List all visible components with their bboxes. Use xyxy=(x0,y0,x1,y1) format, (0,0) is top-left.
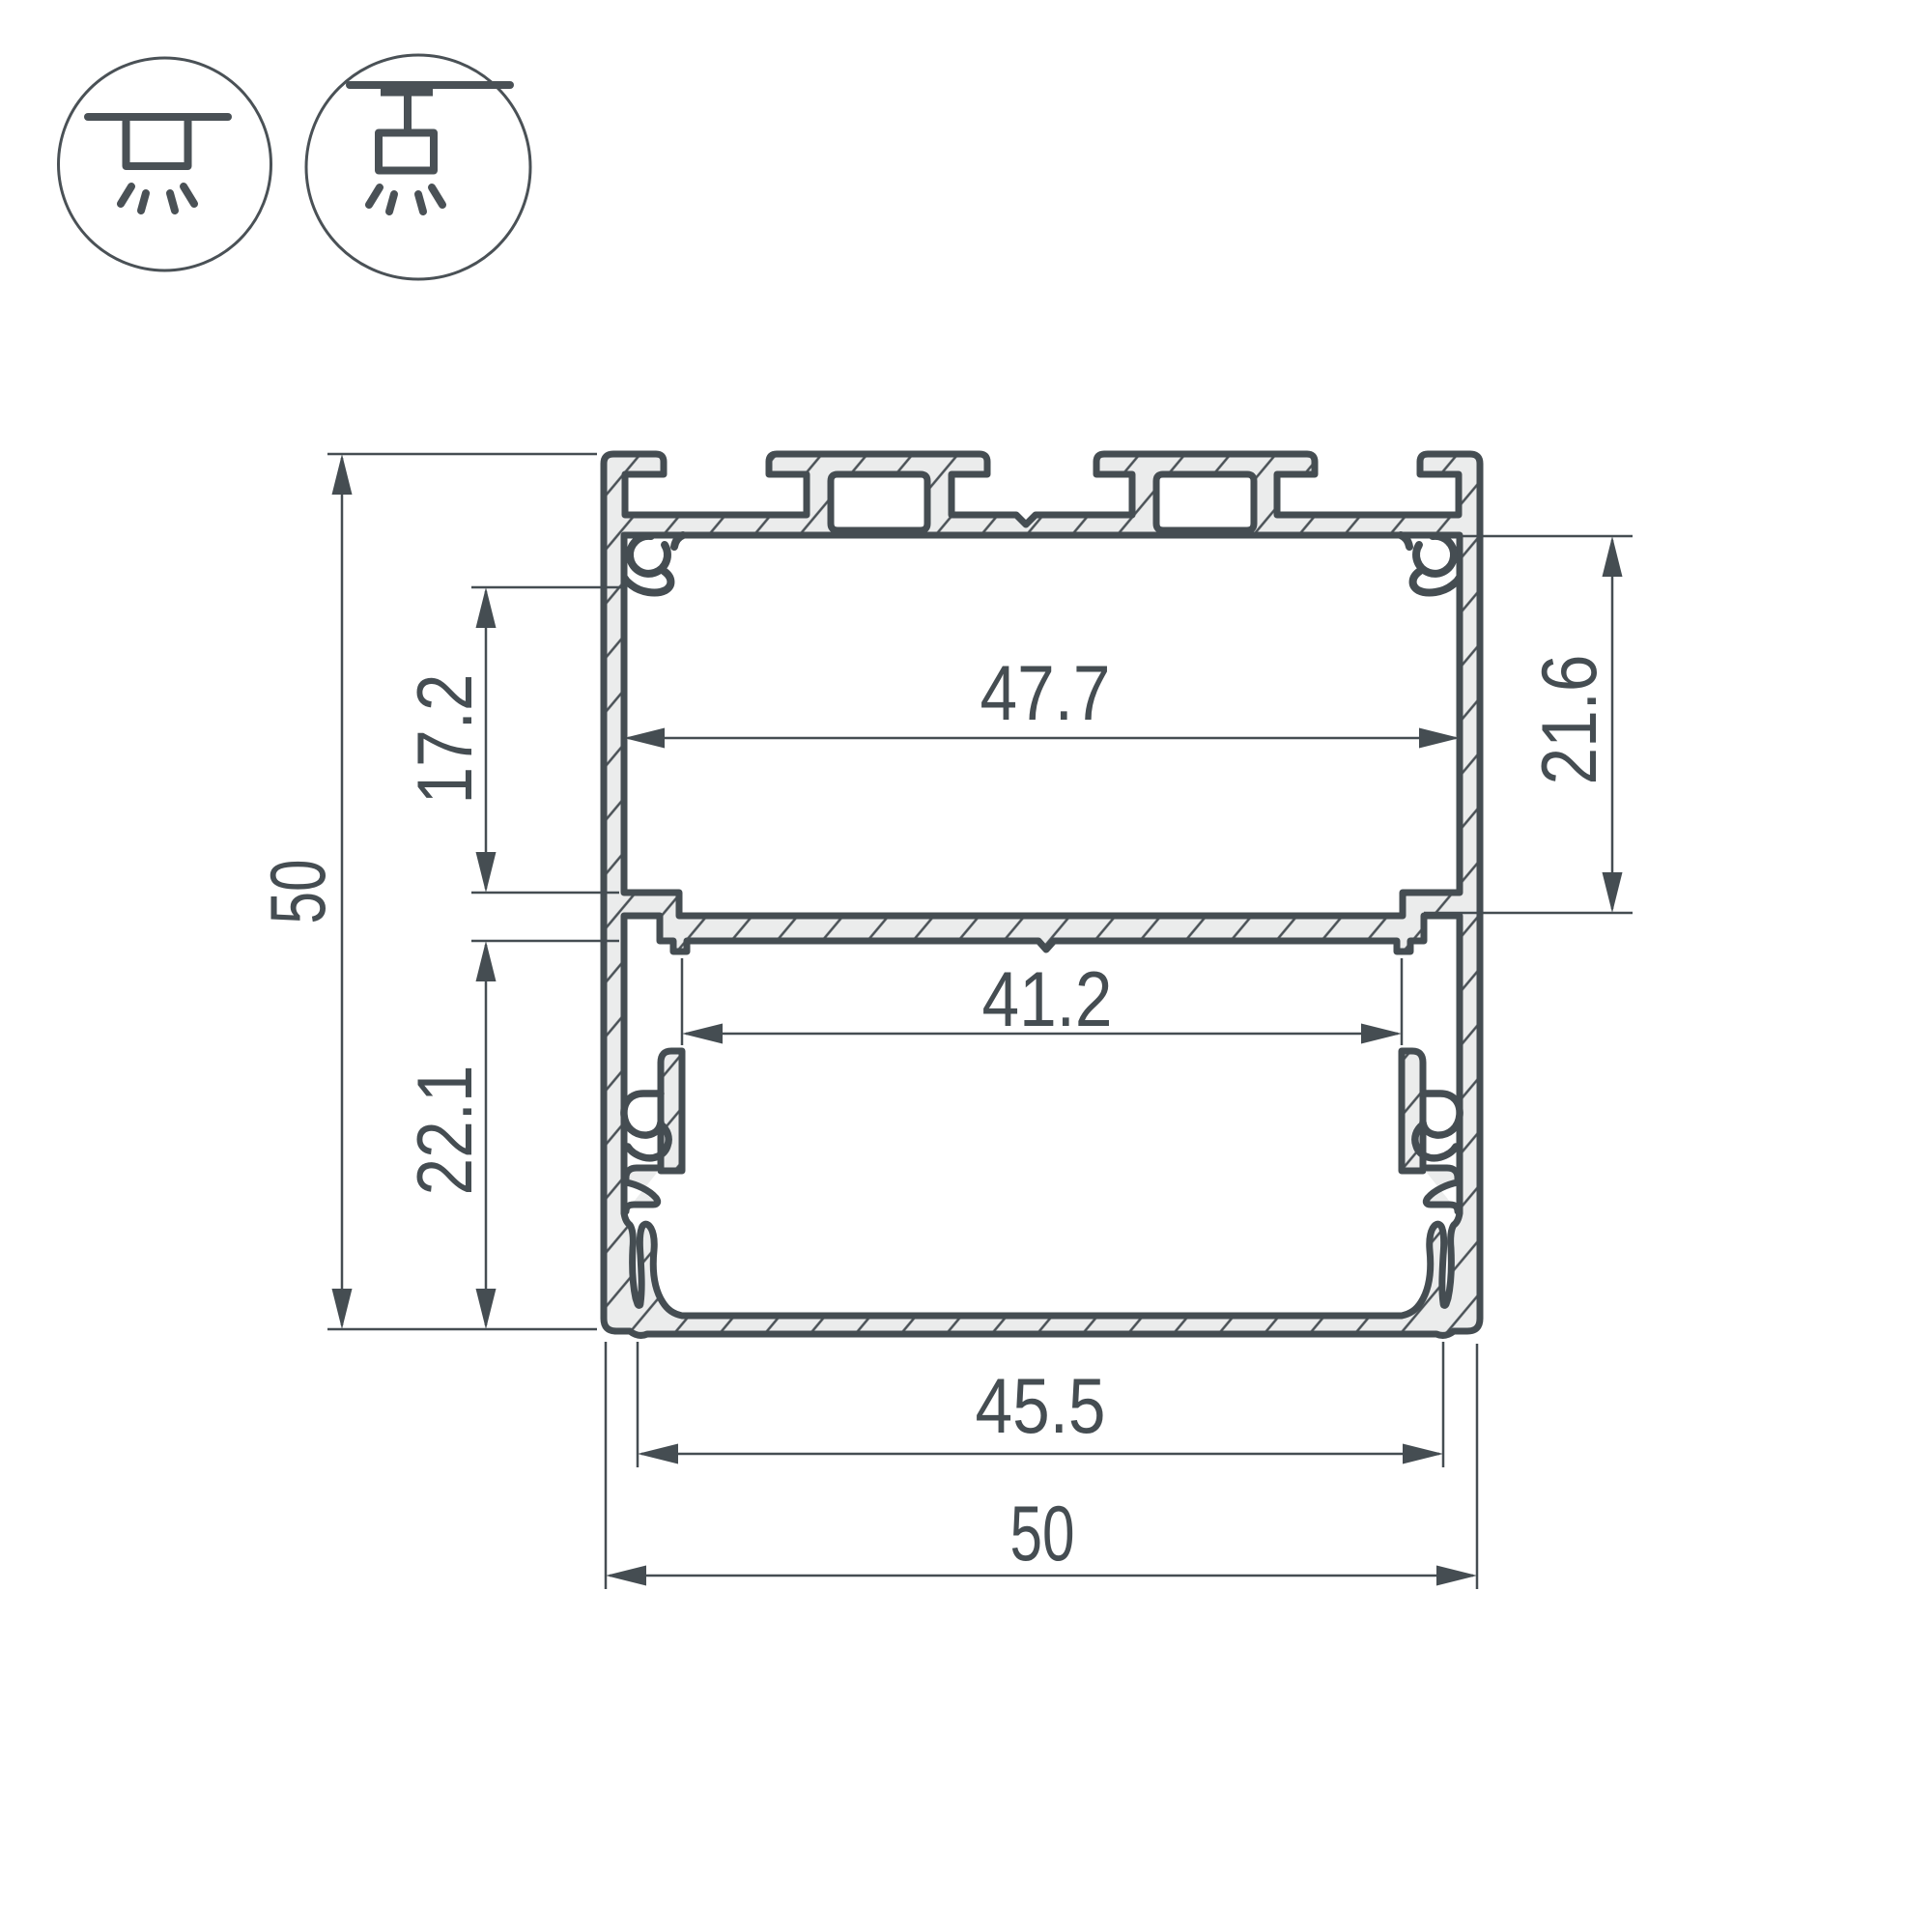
svg-text:47.7: 47.7 xyxy=(980,650,1111,737)
svg-text:22.1: 22.1 xyxy=(402,1065,489,1196)
svg-text:50: 50 xyxy=(1010,1491,1075,1577)
svg-text:41.2: 41.2 xyxy=(982,956,1113,1043)
svg-text:50: 50 xyxy=(255,860,342,924)
svg-text:45.5: 45.5 xyxy=(976,1363,1106,1450)
svg-text:21.6: 21.6 xyxy=(1526,655,1613,785)
svg-text:17.2: 17.2 xyxy=(402,674,489,805)
